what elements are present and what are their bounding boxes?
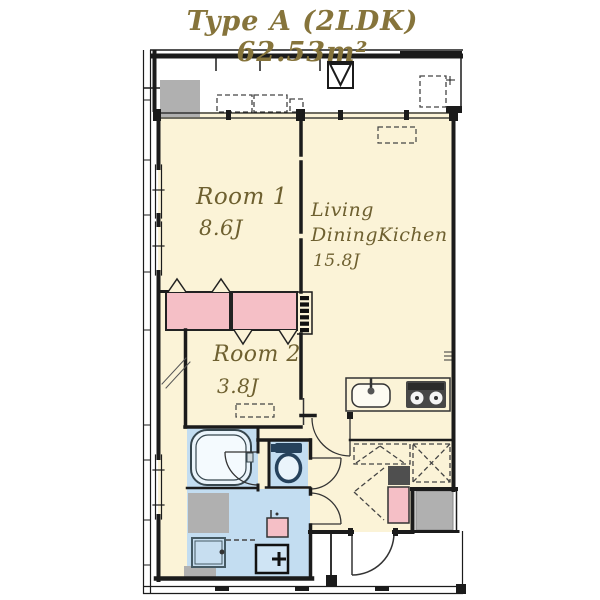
washbasin-icon xyxy=(256,545,288,573)
floor-plan: Type A (2LDK) 62.53m² Room 1 8.6J Living… xyxy=(0,0,600,600)
stove-icon xyxy=(406,381,446,408)
ldk-label-line2: DiningKichen xyxy=(311,226,448,245)
entrance-door xyxy=(352,533,394,575)
room1-label: Room 1 xyxy=(196,186,288,209)
ldk-label-line1: Living xyxy=(311,201,374,220)
room2-label: Room 2 xyxy=(213,344,301,366)
shoe-cabinet xyxy=(388,487,409,523)
washing-machine-pan-icon xyxy=(192,538,225,567)
floorplan-svg xyxy=(0,0,600,600)
room2-size: 3.8J xyxy=(217,376,259,396)
ldk-size: 15.8J xyxy=(313,253,360,270)
dashed-ac-marks xyxy=(217,76,446,112)
bathtub-icon xyxy=(191,430,253,485)
room1-size: 8.6J xyxy=(199,218,243,239)
plan-title: Type A (2LDK) 62.53m² xyxy=(130,6,475,68)
ac-outdoor-unit xyxy=(160,80,200,117)
